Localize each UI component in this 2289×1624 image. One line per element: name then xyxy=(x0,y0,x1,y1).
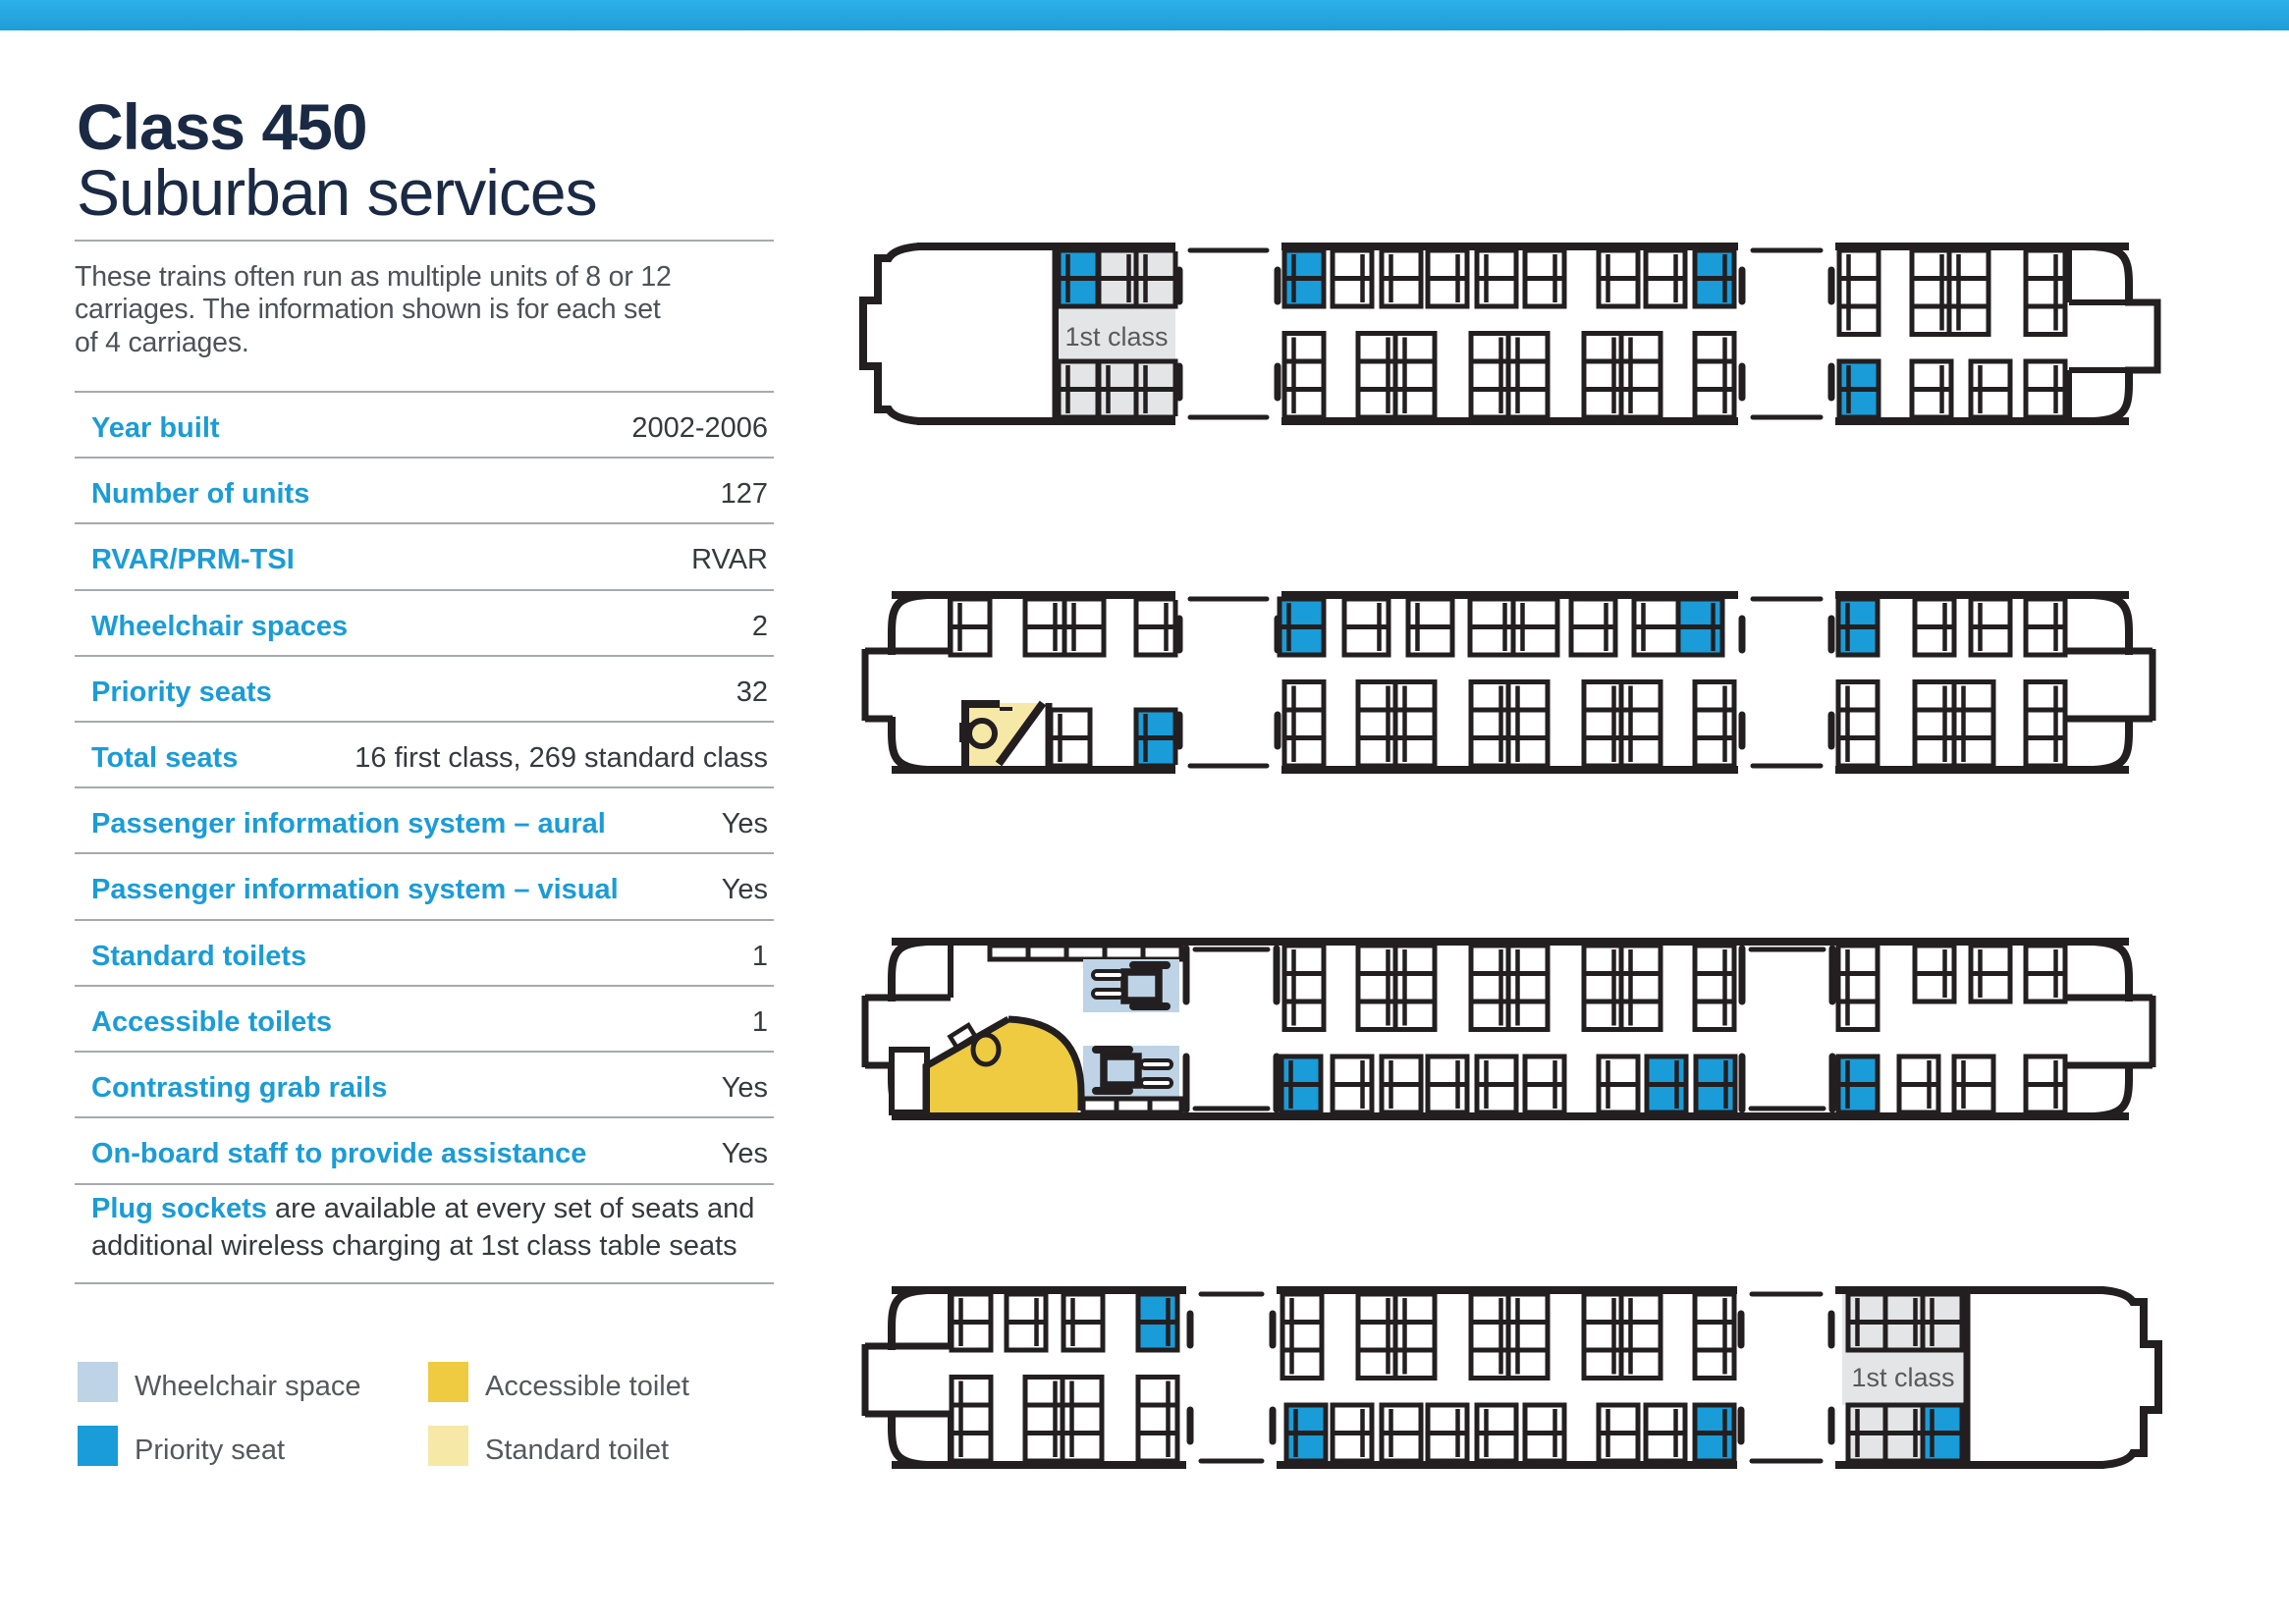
svg-text:1st class: 1st class xyxy=(1064,322,1168,352)
svg-text:1st class: 1st class xyxy=(1851,1363,1954,1392)
